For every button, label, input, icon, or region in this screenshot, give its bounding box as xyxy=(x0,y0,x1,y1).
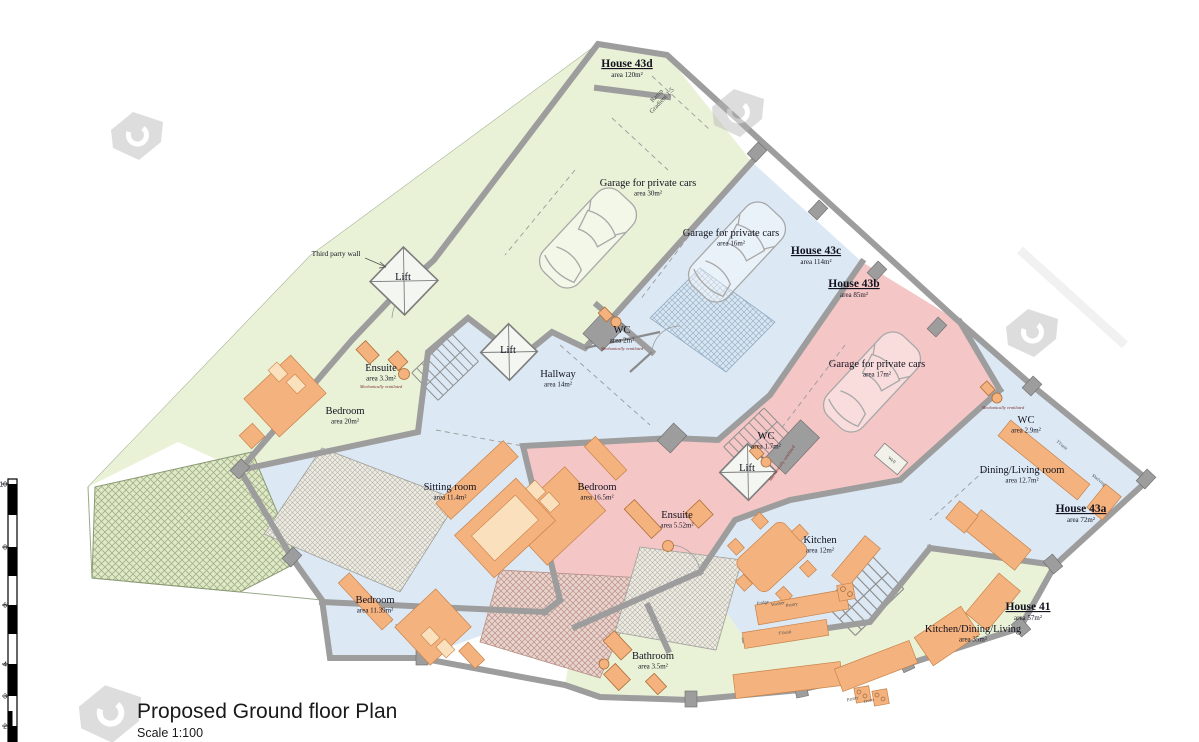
room-label: Lift xyxy=(739,463,755,474)
scale-bar-number: 3 xyxy=(3,694,7,701)
scale-bar: 1086432 xyxy=(0,479,17,742)
page-title: Proposed Ground floor Plan xyxy=(137,700,397,724)
mechanically-ventilated-note: Mechanically ventilated xyxy=(359,384,403,389)
mechanically-ventilated-note: Mechanically ventilated xyxy=(981,405,1025,410)
room-label: Ensuitearea 5.52m² xyxy=(660,510,693,530)
room-label: Bedroomarea 16.5m² xyxy=(577,482,616,502)
scale-bar-number: 4 xyxy=(3,662,7,669)
scale-bar-number: 10 xyxy=(0,482,7,489)
room-label: Bathroomarea 3.5m² xyxy=(632,651,674,671)
floor-plan-page: 1086432 House 43darea 120m²House 43carea… xyxy=(0,0,1199,742)
scale-bar-number: 6 xyxy=(3,603,7,610)
floor-plan-canvas: 1086432 House 43darea 120m²House 43carea… xyxy=(0,0,1199,742)
scale-bar-number: 8 xyxy=(3,545,7,552)
room-label: Lift xyxy=(395,272,411,283)
third-party-wall-label: Third party wall xyxy=(312,249,361,258)
room-label: Lift xyxy=(500,345,516,356)
room-label: Bedroomarea 11.39m² xyxy=(355,595,394,615)
room-label: Ensuitearea 3.3m² xyxy=(365,363,397,383)
room-label: Bedroomarea 20m² xyxy=(325,406,364,426)
mechanically-ventilated-note: Mechanically ventilated xyxy=(600,346,644,351)
scale-bar-number: 2 xyxy=(3,724,7,731)
room-label: Hallwayarea 14m² xyxy=(540,369,576,389)
page-scale: Scale 1:100 xyxy=(137,726,203,740)
room-label: Kitchenarea 12m² xyxy=(803,535,837,555)
